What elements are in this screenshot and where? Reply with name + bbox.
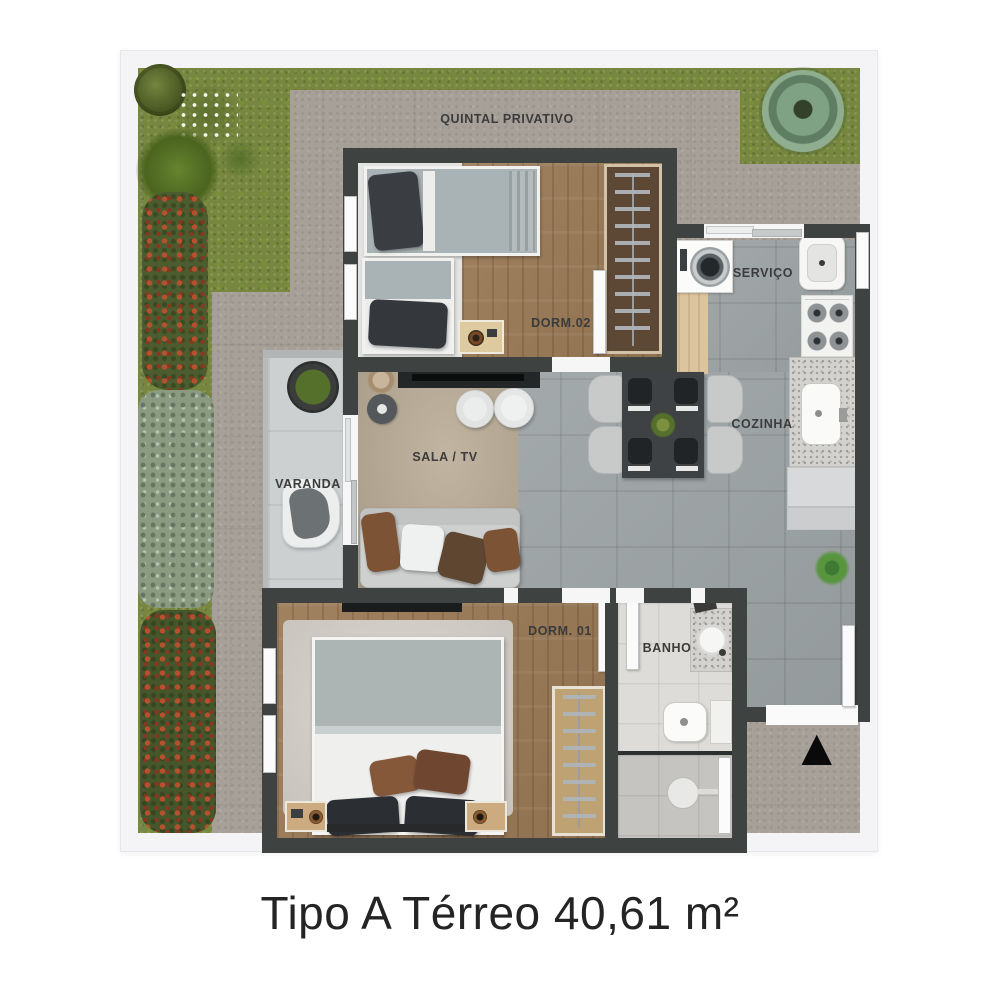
entrance-arrow: ▲ [791,722,842,774]
plan-title: Tipo A Térreo 40,61 m² [0,886,1000,940]
napkin [676,466,698,471]
dining-chair [588,375,624,423]
sliding-door-panel [345,418,351,482]
room-label-banho: BANHO [643,641,692,655]
dresser-knob [468,330,484,346]
wall-dorm2-left [343,148,358,372]
room-label-varanda: VARANDA [275,477,341,491]
fridge-divider [788,506,858,508]
side-table [367,394,397,424]
small-plant [216,140,264,178]
red-flower-bed-top [142,192,208,390]
wall-lower-bottom [262,838,747,853]
dorm1-door-opening [562,588,610,603]
bed-pillow-brown [412,748,471,795]
room-label-dorm2: DORM.02 [531,316,591,330]
dorm1-wardrobe [552,686,606,836]
wall-dorm1-banho-divider [605,603,618,838]
pouf [494,388,534,428]
kitchen-sink-drain [815,410,822,417]
plate [674,378,698,404]
tv [412,374,524,381]
dorm1-window [263,648,276,704]
vanity-faucet [719,649,726,656]
shower-glass-divider [618,751,732,755]
sliding-door-panel [752,229,802,237]
room-label-sala: SALA / TV [412,450,477,464]
washer-drum [690,247,730,287]
varanda-planter [287,361,339,413]
nightstand-item [291,809,303,818]
armchair-cushion [288,486,333,541]
dorm2-wardrobe [604,164,662,354]
room-label-dorm1: DORM. 01 [528,624,592,638]
banho-door-leaf [626,592,639,670]
nightstand [285,801,327,832]
fridge [787,467,857,530]
plate [674,438,698,464]
kitchen-window [856,232,869,289]
bed-a-folds [509,171,535,251]
sliding-door-panel [351,480,357,544]
washing-machine [675,240,733,293]
napkin [628,466,650,471]
napkin [628,406,650,411]
tv-console [398,372,540,388]
pouf [456,390,494,428]
room-label-quintal: QUINTAL PRIVATIVO [440,112,574,126]
room-label-servico: SERVIÇO [733,266,793,280]
indoor-plant [813,546,851,590]
dining-chair [588,426,624,474]
sofa-pillow-brown [360,511,402,573]
table-centerpiece-plant [650,412,676,438]
bed-b-pillow [368,299,448,349]
wall-jamb-mark [504,588,518,603]
wall-jamb-mark [691,588,705,603]
toilet-tank [710,700,732,744]
tree [762,70,844,152]
dorm2-dresser [458,320,504,354]
bed-duvet [315,640,501,734]
entrance-door-leaf [842,625,855,707]
kitchen-sink [801,383,841,445]
side-table-item [377,404,387,414]
bed-b-duvet [365,261,451,299]
bed-a-pillow [367,171,425,252]
sofa-pillow-brown [482,527,522,573]
napkin [676,406,698,411]
room-label-cozinha: COZINHA [731,417,792,431]
wall-dorm2-bottom [343,357,677,372]
laundry-drain [819,260,825,266]
wall-right [855,224,870,722]
varanda-rail [263,350,343,358]
plate [628,438,652,464]
dresser-item [487,329,497,337]
single-bed-a [364,166,540,256]
banho-window [718,757,731,834]
wall-dorm2-top [343,148,677,163]
dining-chair [707,375,743,423]
banho-door-opening [616,588,644,603]
red-flower-bed-bottom [140,610,216,833]
toilet-flush [680,718,688,726]
dorm2-door-leaf [593,270,606,354]
dining-chair [707,426,743,474]
bed-a-sheet-fold [423,171,435,251]
dorm1-window [263,715,276,773]
nightstand [465,801,507,832]
kitchen-faucet [839,408,847,422]
washer-panel [680,249,687,271]
nightstand-speaker [309,810,323,824]
nightstand-speaker [473,810,487,824]
sofa [360,508,520,588]
bathroom-vanity [690,608,732,672]
dining-table [622,372,704,478]
plate [628,378,652,404]
sliding-door-panel [706,226,754,234]
stove [801,295,853,357]
wall-dorm2-right [662,148,677,372]
laundry-sink [799,235,845,290]
toilet-bowl [663,702,707,742]
single-bed-b [362,258,454,354]
dorm2-window [344,264,357,320]
stove-burners [805,299,849,353]
shower-drain [667,777,699,809]
silver-hedge [138,390,214,608]
dorm2-window [344,196,357,252]
dorm2-door-opening [552,357,610,372]
floor-plan-page: ▲ QUINTAL PRIVATIVO DORM.02 SERVIÇO COZI… [0,0,1000,1000]
